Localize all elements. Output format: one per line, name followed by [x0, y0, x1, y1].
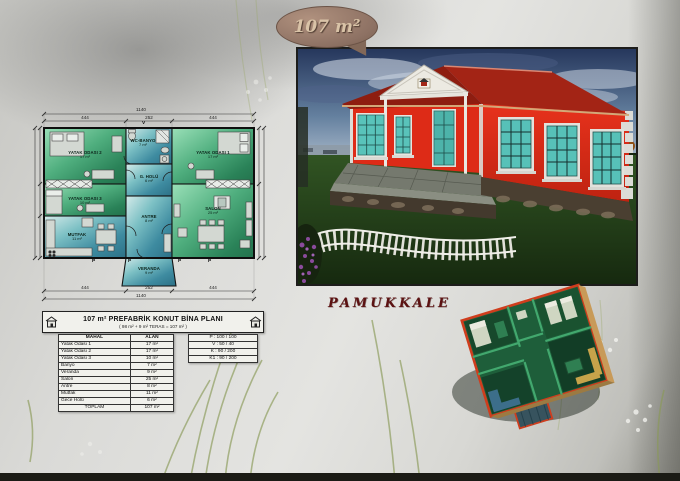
- schedule-row: K : 90 / 200: [189, 349, 258, 356]
- room-label-wc-banyo: WC-BANYO 7 m²: [126, 138, 160, 148]
- room-label-yatak-odasi-2: YATAK ODASI 2 17 m²: [50, 150, 120, 160]
- table-row: Veranda9 m²: [59, 370, 174, 377]
- dim-seg-right-top: 444: [193, 115, 233, 120]
- plan-title: 107 m² PREFABRİK KONUT BİNA PLANI: [59, 316, 247, 323]
- dim-seg-left-top: 444: [65, 115, 105, 120]
- table-total-row: TOPLAM 107 m²: [59, 405, 174, 412]
- house-render-illustration: [298, 49, 636, 284]
- joinery-schedule-table: P : 100 / 100 V : 50 / 40 K : 90 / 200 K…: [188, 334, 258, 363]
- schedule-row: P : 100 / 100: [189, 335, 258, 342]
- room-label-salon: SALON 25 m²: [178, 206, 248, 216]
- floor-plan: YATAK ODASI 2 17 m² YATAK ODASI 3 10 m² …: [28, 108, 272, 308]
- house-icon: [43, 314, 59, 330]
- plan-subtitle: ( 98 m² + 9 m² TERAS = 107 m² ): [59, 324, 247, 329]
- house-icon: [247, 314, 263, 330]
- page-bottom-strip: [0, 473, 680, 481]
- dim-total-top: 1140: [121, 107, 161, 112]
- table-row: Gece Holü6 m²: [59, 398, 174, 405]
- dim-seg-left-bottom: 444: [65, 285, 105, 290]
- area-table: MAHAL ALAN Yatak Odası 117 m² Yatak Odas…: [58, 334, 174, 412]
- table-row: Yatak Odası 310 m²: [59, 356, 174, 363]
- window-mark: P: [128, 259, 131, 264]
- title-block: 107 m² PREFABRİK KONUT BİNA PLANI ( 98 m…: [36, 309, 268, 404]
- vent-mark: V: [142, 121, 145, 126]
- cutaway-3d-model: [448, 278, 628, 438]
- brochure-page: 107 m²: [0, 0, 680, 481]
- table-header-row: MAHAL ALAN: [59, 335, 174, 342]
- plan-title-bar: 107 m² PREFABRİK KONUT BİNA PLANI ( 98 m…: [42, 311, 264, 333]
- area-badge-label: 107 m²: [294, 17, 361, 37]
- table-row: Yatak Odası 117 m²: [59, 342, 174, 349]
- dim-seg-mid-bottom: 252: [129, 285, 169, 290]
- room-label-antre: ANTRE 8 m²: [126, 214, 172, 224]
- table-row: Salon25 m²: [59, 377, 174, 384]
- dim-seg-mid-top: 252: [129, 115, 169, 120]
- window-mark: P: [92, 259, 95, 264]
- table-row: Mutfak11 m²: [59, 391, 174, 398]
- schedule-row: K1 : 90 / 200: [189, 356, 258, 363]
- dim-total-bottom: 1140: [121, 293, 161, 298]
- area-badge: 107 m²: [276, 6, 378, 48]
- window-mark: P: [178, 259, 181, 264]
- room-label-yatak-odasi-1: YATAK ODASI 1 17 m²: [178, 150, 248, 160]
- table-row: Yatak Odası 217 m²: [59, 349, 174, 356]
- table-row: Banyo7 m²: [59, 363, 174, 370]
- room-label-veranda: VERANDA 9 m²: [126, 266, 172, 276]
- room-label-g-holu: G. HOLÜ 6 m²: [126, 174, 172, 184]
- schedule-row: V : 50 / 40: [189, 342, 258, 349]
- dim-seg-right-bottom: 444: [193, 285, 233, 290]
- table-row: Antre8 m²: [59, 384, 174, 391]
- room-label-yatak-odasi-3: YATAK ODASI 3 10 m²: [50, 196, 120, 206]
- room-label-mutfak: MUTFAK 11 m²: [44, 232, 110, 242]
- house-render-photo: [296, 47, 638, 286]
- window-mark: P: [208, 259, 211, 264]
